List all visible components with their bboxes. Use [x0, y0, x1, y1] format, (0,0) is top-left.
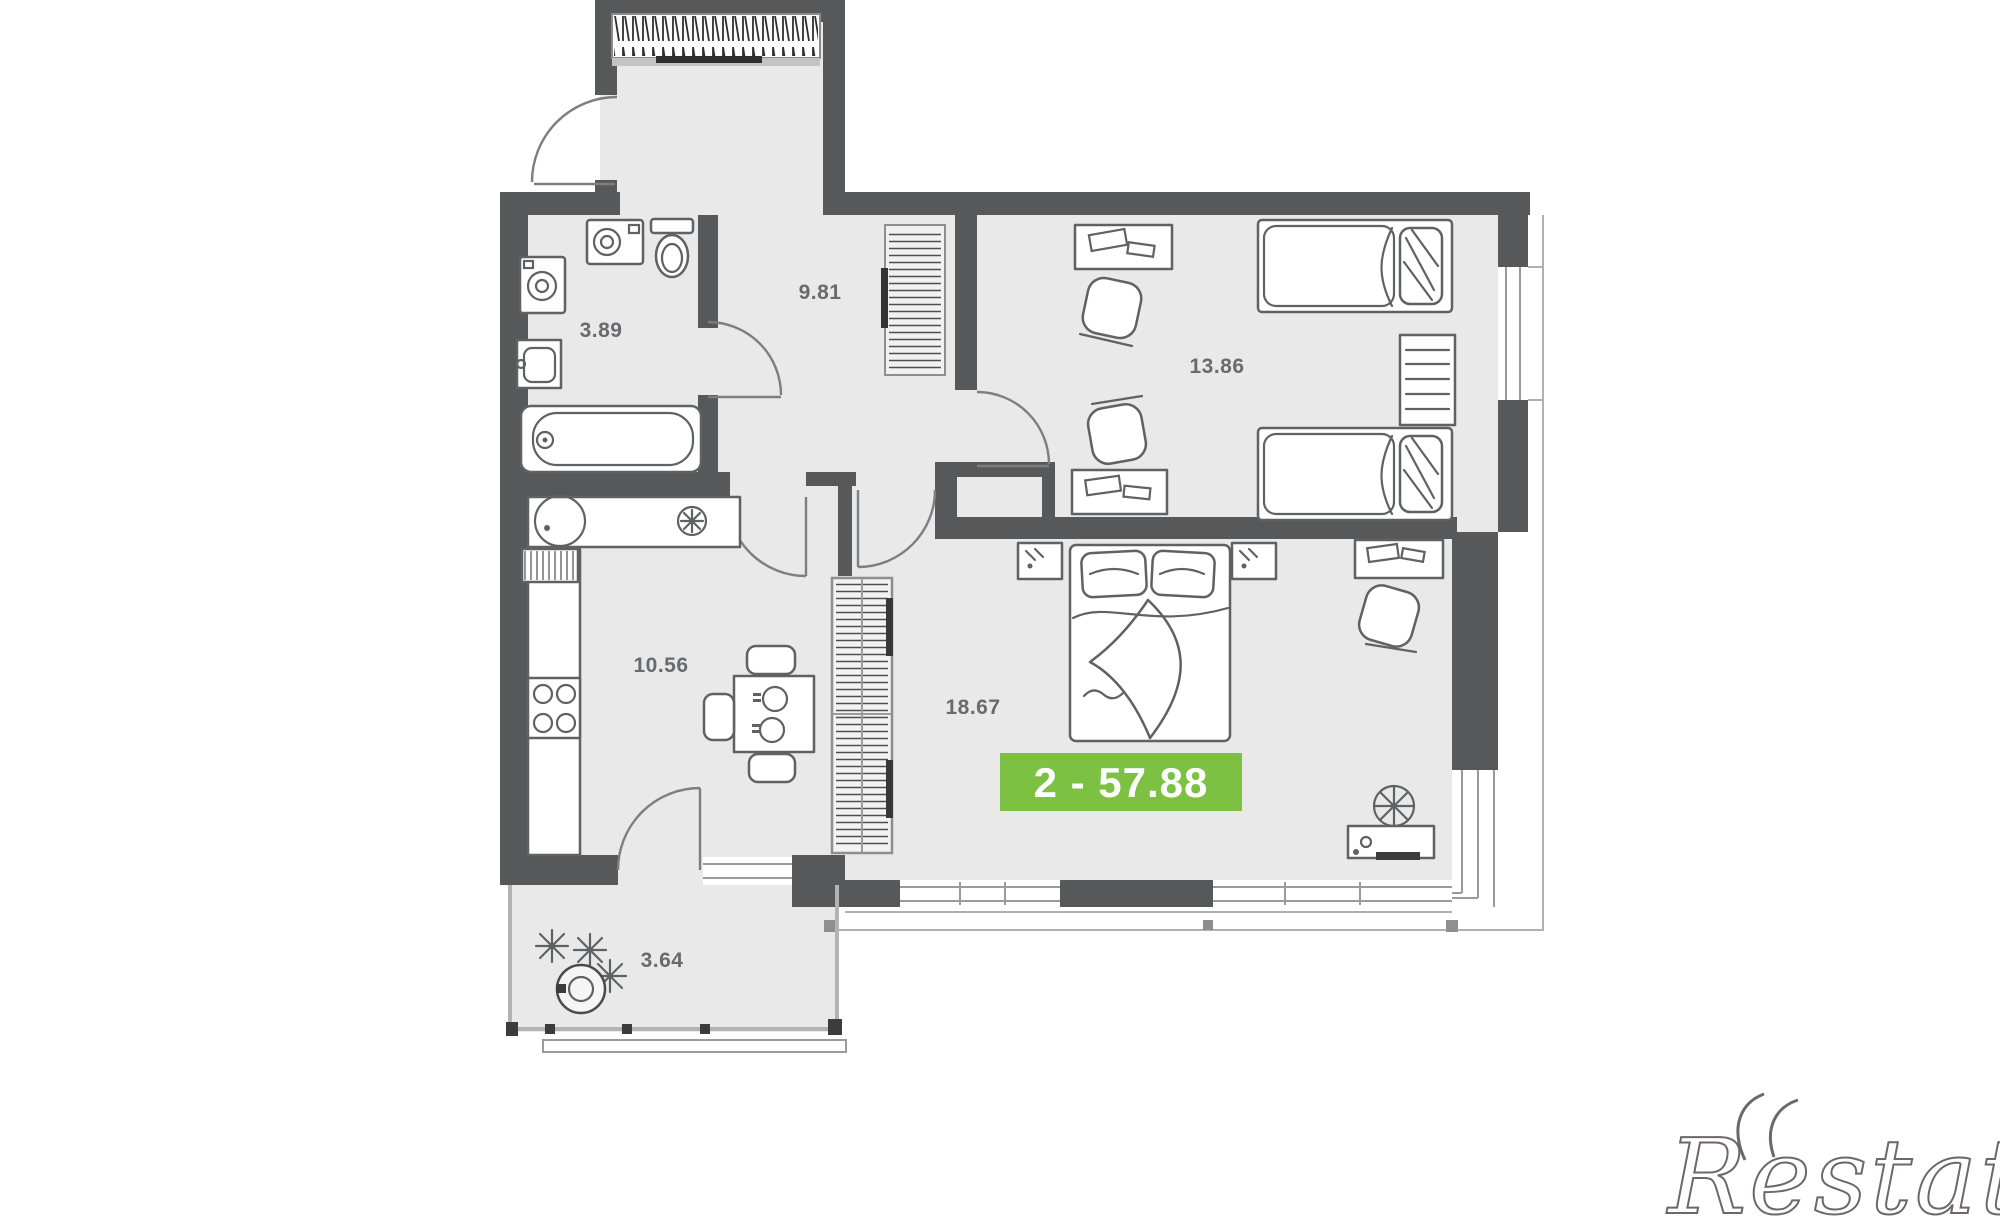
- hallway-area-label: 9.81: [799, 281, 842, 304]
- living-room-area-label: 18.67: [945, 696, 1000, 719]
- drain-board-icon: [522, 549, 578, 582]
- nightstand-lamp-icon: [1018, 543, 1062, 579]
- floor-plan-page: 3.89 9.81 13.86 10.56 18.67 3.64 2 - 57.…: [0, 0, 2000, 1223]
- double-bed-icon: [1070, 545, 1230, 741]
- watermark-logo: Restate: [1666, 1094, 2000, 1223]
- bookshelf-icon: [1400, 335, 1455, 425]
- balcony-area-label: 3.64: [641, 949, 684, 972]
- watermark-text: Restate: [1666, 1116, 2000, 1223]
- desk-icon: [1072, 470, 1167, 514]
- hanger-closet-icon: [614, 16, 818, 56]
- entry-closet: [612, 14, 820, 66]
- kitchen-area-label: 10.56: [633, 654, 688, 677]
- radiator-icon: [889, 229, 941, 371]
- wardrobe: [832, 578, 893, 853]
- bedroom-area-label: 13.86: [1189, 355, 1244, 378]
- floor-plan-canvas: 3.89 9.81 13.86 10.56 18.67 3.64 2 - 57.…: [0, 0, 2000, 1223]
- desk-icon: [1355, 540, 1443, 578]
- nightstand-lamp-icon: [1232, 543, 1276, 579]
- single-bed-icon: [1258, 428, 1452, 520]
- bathroom-sink-icon: [517, 340, 561, 388]
- hall-radiator: [881, 225, 945, 375]
- dining-table-icon: [734, 676, 814, 752]
- single-bed-icon: [1258, 220, 1452, 312]
- hob-burner-icon: [678, 507, 706, 535]
- bathroom-area-label: 3.89: [580, 319, 623, 342]
- washing-machine-icon: [587, 220, 643, 264]
- area-badge: 2 - 57.88: [1000, 753, 1242, 811]
- desk-icon: [1075, 225, 1172, 269]
- bathtub-icon: [521, 406, 701, 472]
- area-badge-text: 2 - 57.88: [1034, 759, 1209, 806]
- washing-machine-icon: [520, 257, 565, 313]
- kitchen-window-icon: [703, 857, 792, 885]
- stove-icon: [528, 678, 580, 738]
- bedroom-window-icon: [1498, 267, 1528, 400]
